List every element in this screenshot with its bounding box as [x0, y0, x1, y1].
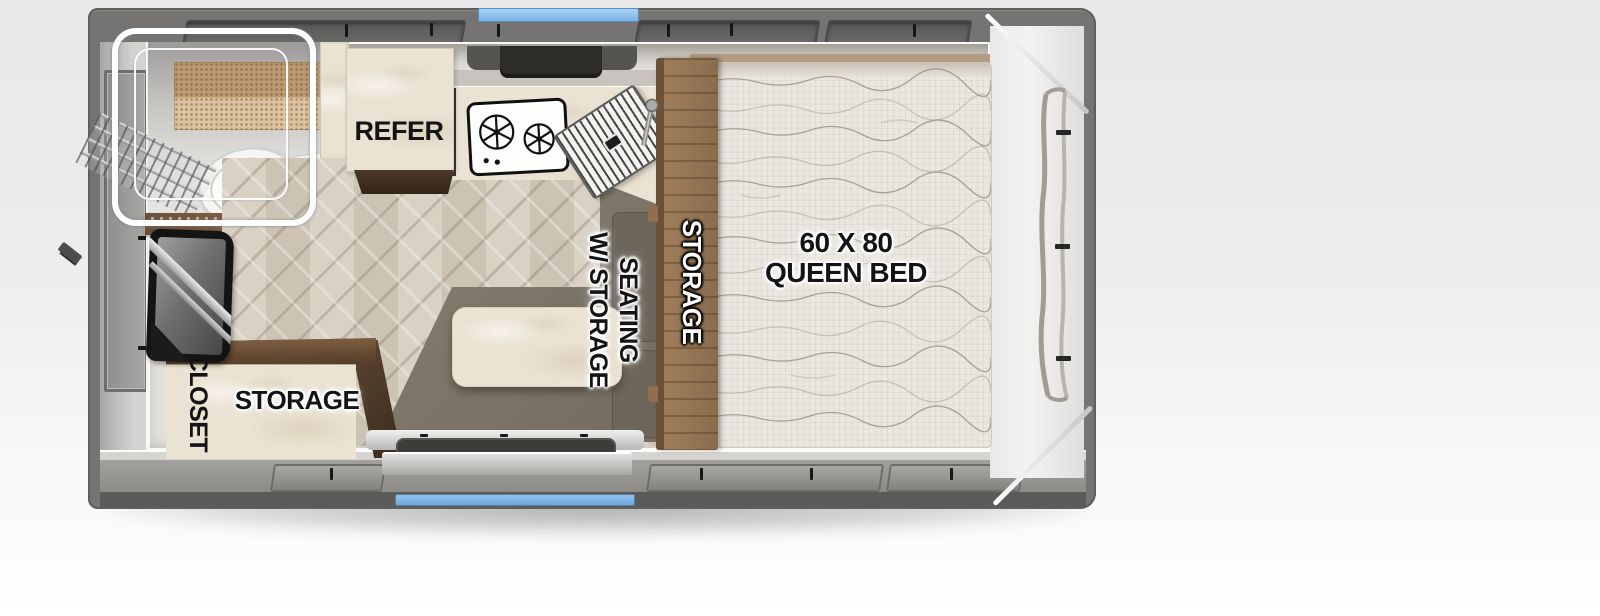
step-hinge: [500, 434, 508, 437]
clearance-light-rear: [395, 494, 635, 506]
shower-curtain-track: [134, 48, 288, 200]
seating-storage-label: SEATING W/ STORAGE: [581, 195, 643, 425]
bed-storage-knob: [648, 206, 658, 222]
frame-tick: [730, 23, 733, 36]
frame-panel: [270, 464, 386, 492]
bed-storage-knob: [648, 386, 658, 402]
frame-tick: [700, 468, 703, 480]
frame-tick: [330, 468, 333, 480]
frame-tick: [430, 23, 433, 36]
bed-size-label: 60 X 80: [746, 228, 946, 258]
bed-storage-label: STORAGE: [662, 207, 722, 357]
rear-window-icon: [1032, 86, 1076, 404]
frame-tick: [810, 468, 813, 480]
bed-type-label: QUEEN BED: [746, 258, 946, 288]
tie-down-bracket: [57, 242, 82, 265]
frame-tick: [667, 24, 670, 37]
refrigerator-base: [354, 170, 454, 194]
frame-panel: [646, 464, 884, 492]
frame-tick: [913, 24, 916, 37]
tv-icon: [146, 229, 235, 364]
step-hinge: [420, 434, 428, 437]
clearance-light-front: [478, 8, 639, 22]
step-hinge: [580, 434, 588, 437]
bed-label: 60 X 80 QUEEN BED: [746, 228, 946, 288]
entry-step-tread: [382, 452, 632, 475]
frame-tick: [950, 468, 953, 480]
seating-label-line2: W/ STORAGE: [583, 195, 613, 425]
refrigerator: [346, 48, 454, 172]
frame-tick: [345, 24, 348, 37]
seating-label-line1: SEATING: [613, 195, 643, 425]
refer-label: REFER: [348, 116, 450, 147]
closet-label: CLOSET: [170, 348, 226, 458]
cabinet-storage-label: STORAGE: [224, 385, 370, 416]
frame-tick: [497, 24, 500, 37]
range-hood-vent: [500, 46, 602, 78]
floorplan-canvas: REFER SEATING W/ STORAGE CLOSET STO: [0, 0, 1600, 616]
